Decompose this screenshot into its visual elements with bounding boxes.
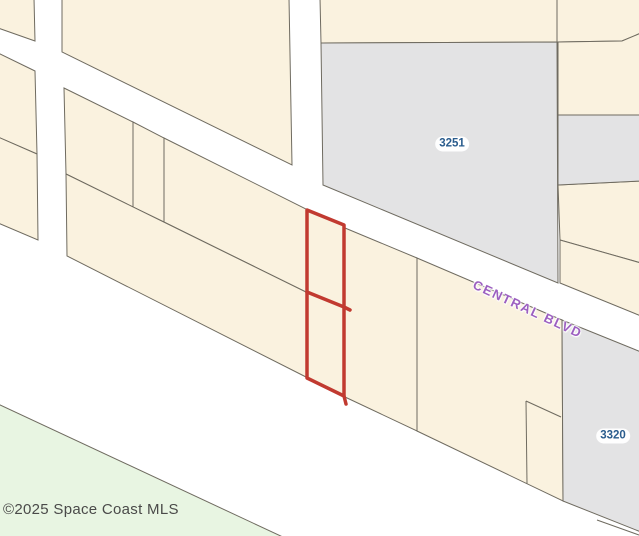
mls-copyright-watermark: ©2025 Space Coast MLS: [3, 501, 179, 518]
map-polygon-parcel-3320: [562, 320, 639, 532]
parcel-number-label-3251: 3251: [435, 137, 469, 152]
map-polygon-lot-right-row2: [558, 33, 639, 115]
map-polygon-lot-top-right: [557, 0, 639, 42]
map-polygon-lot-left-lower: [0, 137, 38, 240]
map-polygon-lot-right-gray-strip: [558, 115, 639, 185]
subject-parcel-outline-tail: [344, 396, 346, 404]
map-polygon-belt-east-of-subject: [345, 228, 417, 431]
map-polygon-lot-left-upper: [0, 53, 37, 154]
parcel-map: 3251 3320 CENTRAL BLVD ©2025 Space Coast…: [0, 0, 639, 536]
map-polygon-lot-top-center-right: [320, 0, 557, 43]
map-polygon-lot-top-left: [0, 0, 35, 41]
map-canvas: [0, 0, 639, 536]
parcel-number-label-3320: 3320: [596, 429, 630, 444]
map-polygon-belt-upper-2: [133, 122, 164, 222]
